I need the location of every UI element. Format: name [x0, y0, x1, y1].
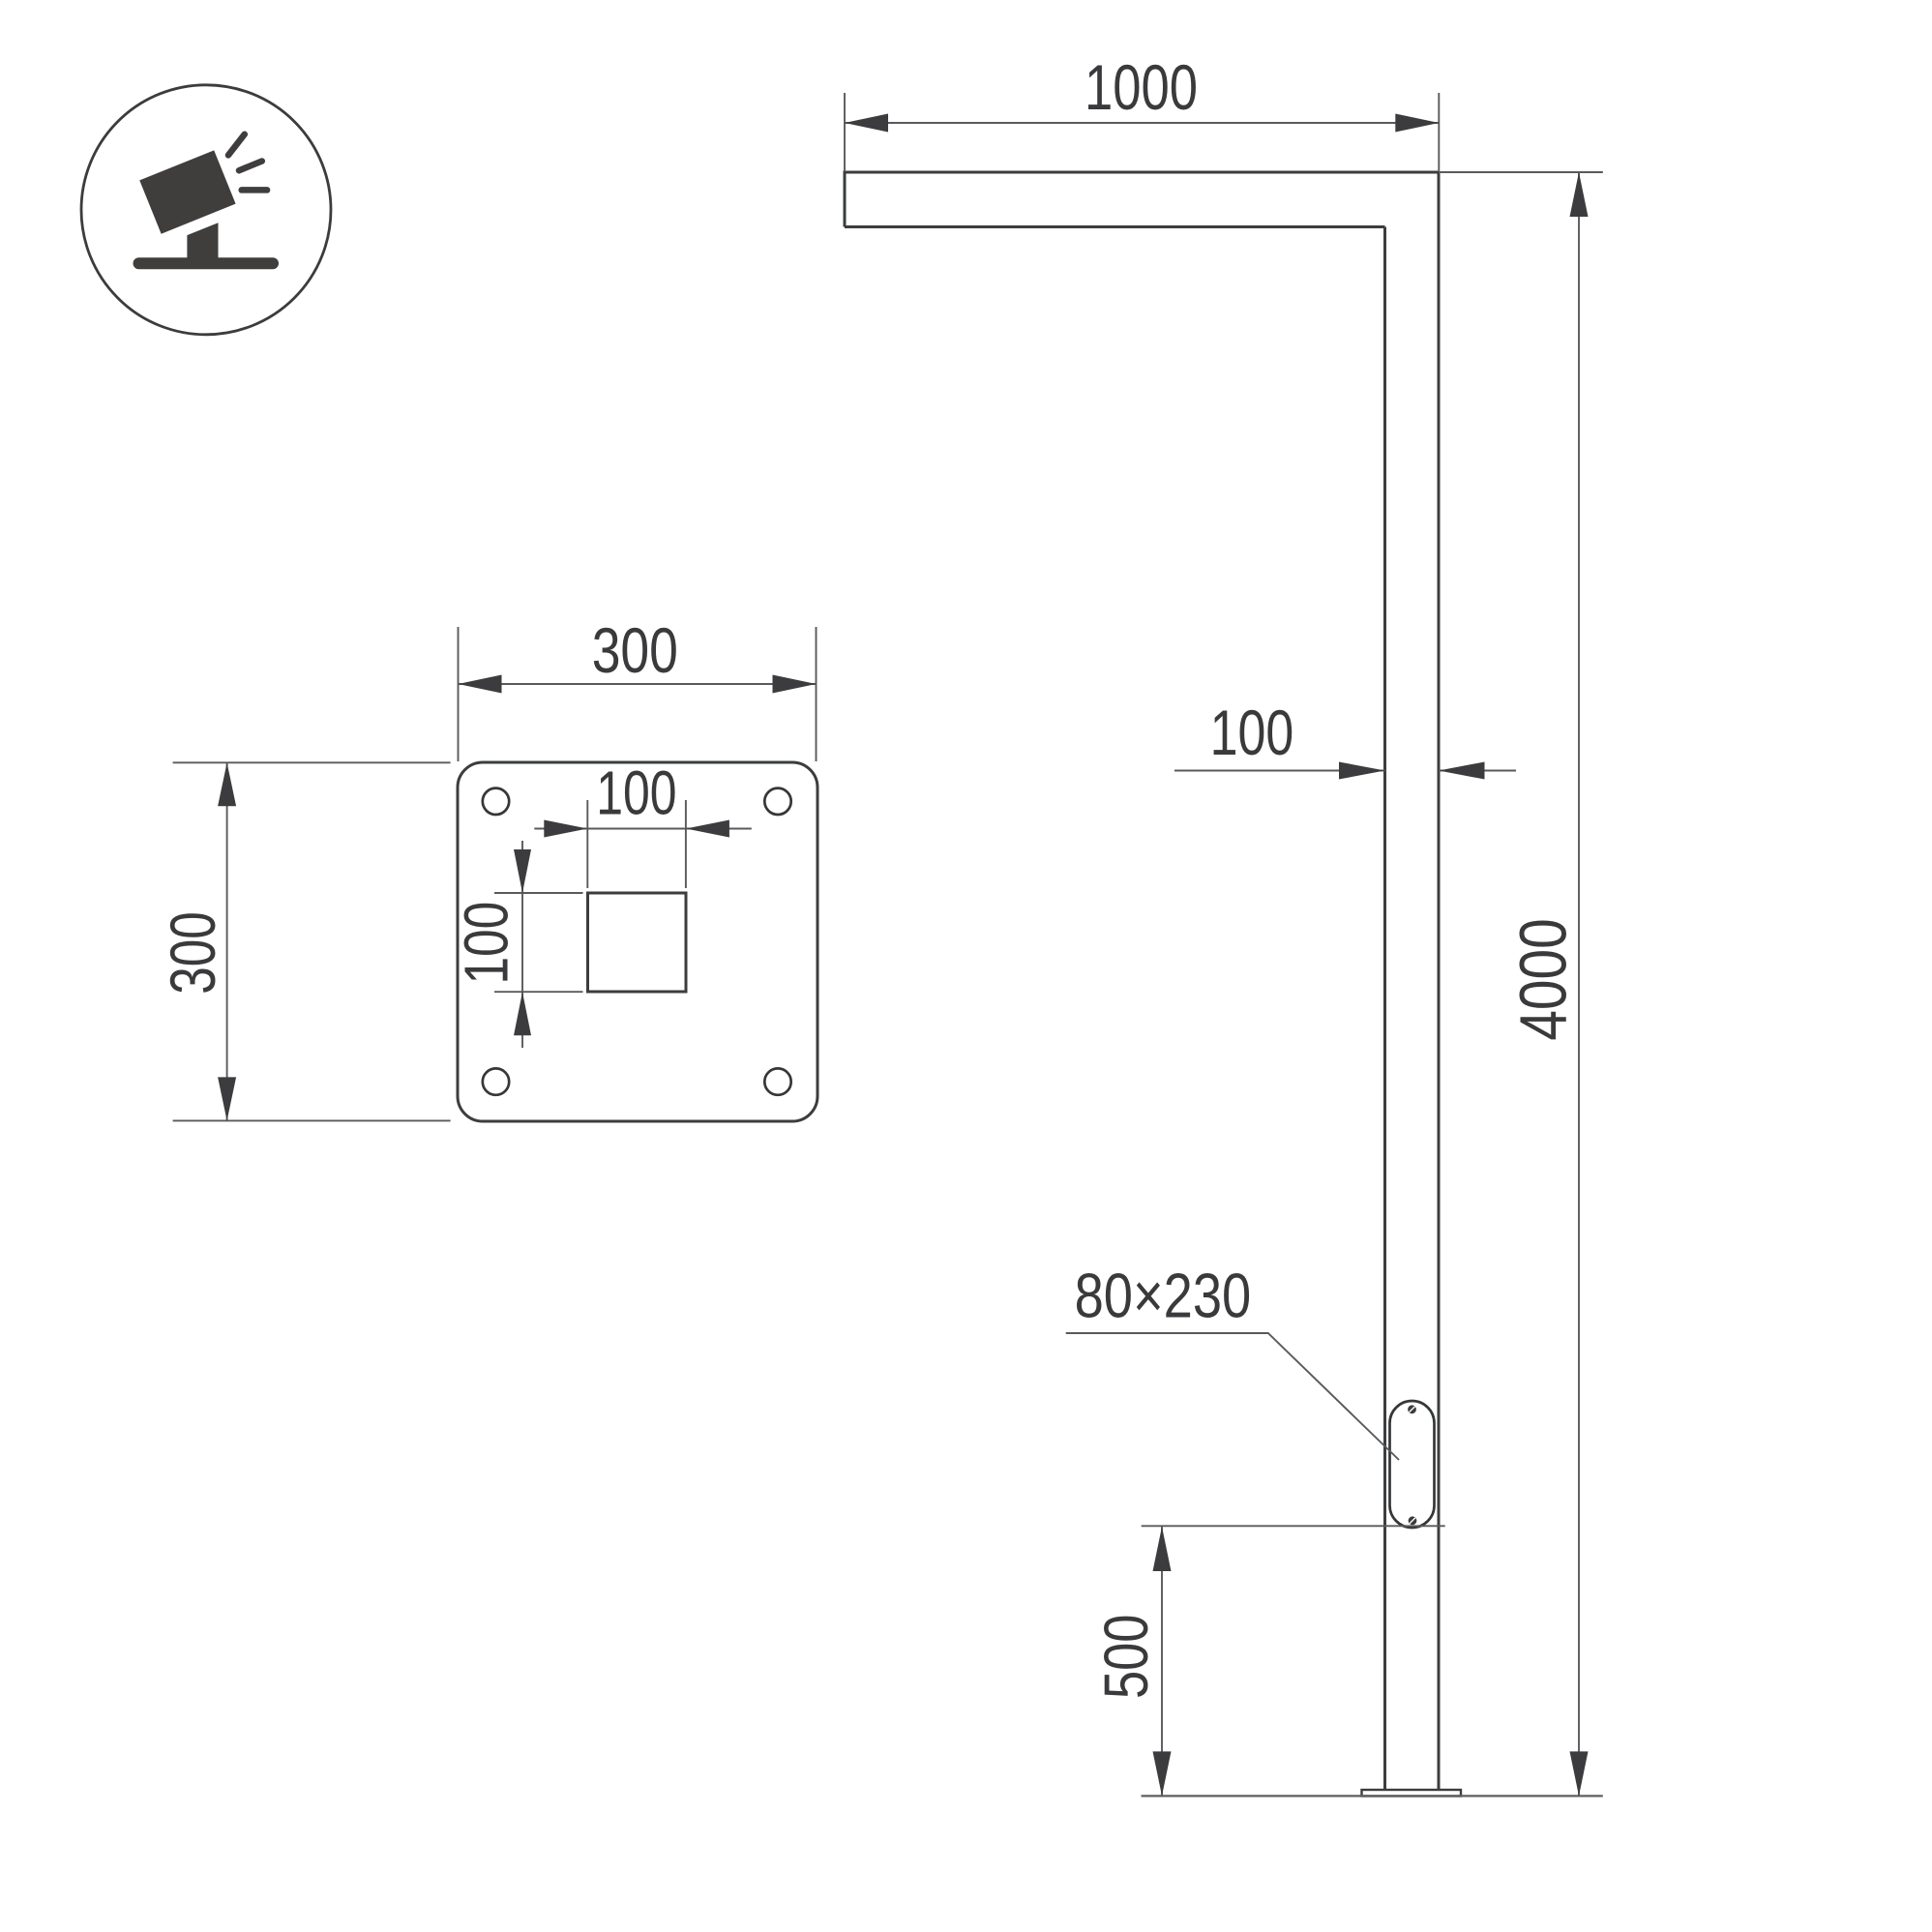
svg-text:300: 300 — [592, 614, 678, 686]
svg-text:100: 100 — [452, 902, 521, 985]
svg-text:100: 100 — [1210, 697, 1294, 768]
svg-text:1000: 1000 — [1085, 51, 1198, 123]
svg-text:4000: 4000 — [1506, 918, 1581, 1040]
svg-text:100: 100 — [596, 758, 676, 827]
svg-text:300: 300 — [157, 911, 228, 994]
svg-text:80×230: 80×230 — [1075, 1260, 1252, 1330]
svg-text:500: 500 — [1091, 1615, 1161, 1700]
